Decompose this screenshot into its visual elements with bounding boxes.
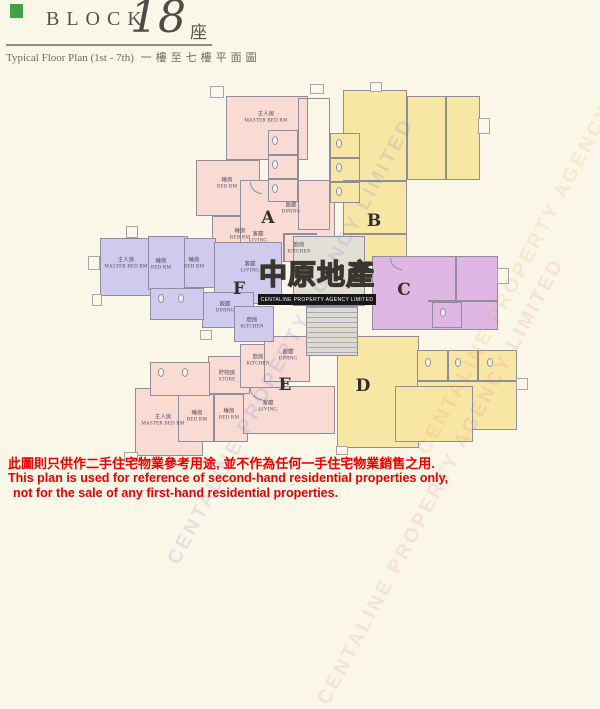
unit-c-bathroom xyxy=(432,302,462,328)
wall xyxy=(445,96,447,180)
unit-letter-e: E xyxy=(279,375,292,395)
disclaimer-line-en-2: not for the sale of any first-hand resid… xyxy=(8,486,448,501)
unit-letter-c: C xyxy=(397,280,411,300)
room-label: 主人房MASTER BED RM xyxy=(141,414,184,427)
room-label: 客廳LIVING xyxy=(259,400,277,413)
platform xyxy=(210,86,224,98)
platform xyxy=(478,118,490,134)
toilet-fixture-icon xyxy=(440,308,446,317)
toilet-fixture-icon xyxy=(182,368,188,377)
block-marker-icon xyxy=(10,4,23,18)
toilet-fixture-icon xyxy=(336,187,342,196)
room-label: 睡房BED RM xyxy=(151,258,171,271)
room-label: 貯物房STORE xyxy=(219,370,236,383)
disclaimer-line-zh: 此圖則只供作二手住宅物業參考用途, 並不作為任何一手住宅物業銷售之用. xyxy=(8,456,448,471)
header: BLOCK 18 座 Typical Floor Plan (1st - 7th… xyxy=(0,0,300,70)
room-label: 飯廳DINING xyxy=(279,349,298,362)
wall xyxy=(268,154,298,156)
floor-plan-page: BLOCK 18 座 Typical Floor Plan (1st - 7th… xyxy=(0,0,600,506)
room-label: 睡房BED RM xyxy=(219,408,239,421)
room-label: 廚房KITCHEN xyxy=(246,354,269,367)
room-label: 廚房KITCHEN xyxy=(240,317,263,330)
platform xyxy=(310,84,324,94)
room-label: 睡房BED RM xyxy=(187,410,207,423)
disclaimer-line-en-1: This plan is used for reference of secon… xyxy=(8,471,448,486)
block-number: 18 xyxy=(130,0,186,43)
toilet-fixture-icon xyxy=(158,294,164,303)
unit-letter-a: A xyxy=(261,208,274,228)
unit-letter-b: B xyxy=(367,211,381,231)
room-label: 飯廳DINING xyxy=(216,301,235,314)
unit-letter-d: D xyxy=(356,376,371,396)
wall xyxy=(447,350,449,380)
centaline-logo-chinese: 中原地產 xyxy=(258,253,376,293)
platform xyxy=(370,82,382,92)
centaline-logo-english: CENTALINE PROPERTY AGENCY LIMITED xyxy=(258,294,376,305)
platform xyxy=(88,256,100,270)
room-label: 睡房BED RM xyxy=(217,177,237,190)
toilet-fixture-icon xyxy=(336,163,342,172)
unit-e-bathrooms xyxy=(150,362,210,396)
platform xyxy=(516,378,528,390)
wall xyxy=(455,256,457,301)
unit-b-bedroom-wing xyxy=(407,96,480,180)
room-label: 飯廳DINING xyxy=(282,202,301,215)
header-rule xyxy=(6,44,212,46)
room-label: 客廳LIVING xyxy=(249,231,267,244)
disclaimer: 此圖則只供作二手住宅物業參考用途, 並不作為任何一手住宅物業銷售之用. This… xyxy=(8,456,448,501)
platform xyxy=(200,330,212,340)
room-label: 主人房MASTER BED RM xyxy=(244,111,287,124)
toilet-fixture-icon xyxy=(158,368,164,377)
platform xyxy=(336,446,348,455)
room-label: 客廳LIVING xyxy=(241,261,259,274)
block-suffix: 座 xyxy=(190,18,207,43)
platform xyxy=(92,294,102,306)
toilet-fixture-icon xyxy=(336,139,342,148)
lightwell xyxy=(298,98,330,230)
plan-subtitle: Typical Floor Plan (1st - 7th) 一樓至七樓平面圖 xyxy=(6,49,261,65)
platform xyxy=(126,226,138,238)
unit-b-bathrooms xyxy=(330,133,360,203)
room-label: 主人房MASTER BED RM xyxy=(104,257,147,270)
toilet-fixture-icon xyxy=(272,160,278,169)
centaline-logo: 中原地產 CENTALINE PROPERTY AGENCY LIMITED xyxy=(258,253,376,305)
wall xyxy=(283,233,317,235)
wall xyxy=(330,157,360,159)
toilet-fixture-icon xyxy=(178,294,184,303)
toilet-fixture-icon xyxy=(272,184,278,193)
wall xyxy=(213,394,215,442)
wall xyxy=(330,181,360,183)
toilet-fixture-icon xyxy=(272,136,278,145)
unit-letter-f: F xyxy=(233,279,245,299)
subtitle-en: Typical Floor Plan (1st - 7th) xyxy=(6,52,134,64)
room-label: 睡房BED RM xyxy=(230,228,250,241)
wall xyxy=(268,178,298,180)
room-label: 睡房BED RM xyxy=(184,257,204,270)
subtitle-zh: 一樓至七樓平面圖 xyxy=(141,52,261,64)
toilet-fixture-icon xyxy=(425,358,431,367)
unit-f-bathrooms xyxy=(150,288,204,320)
